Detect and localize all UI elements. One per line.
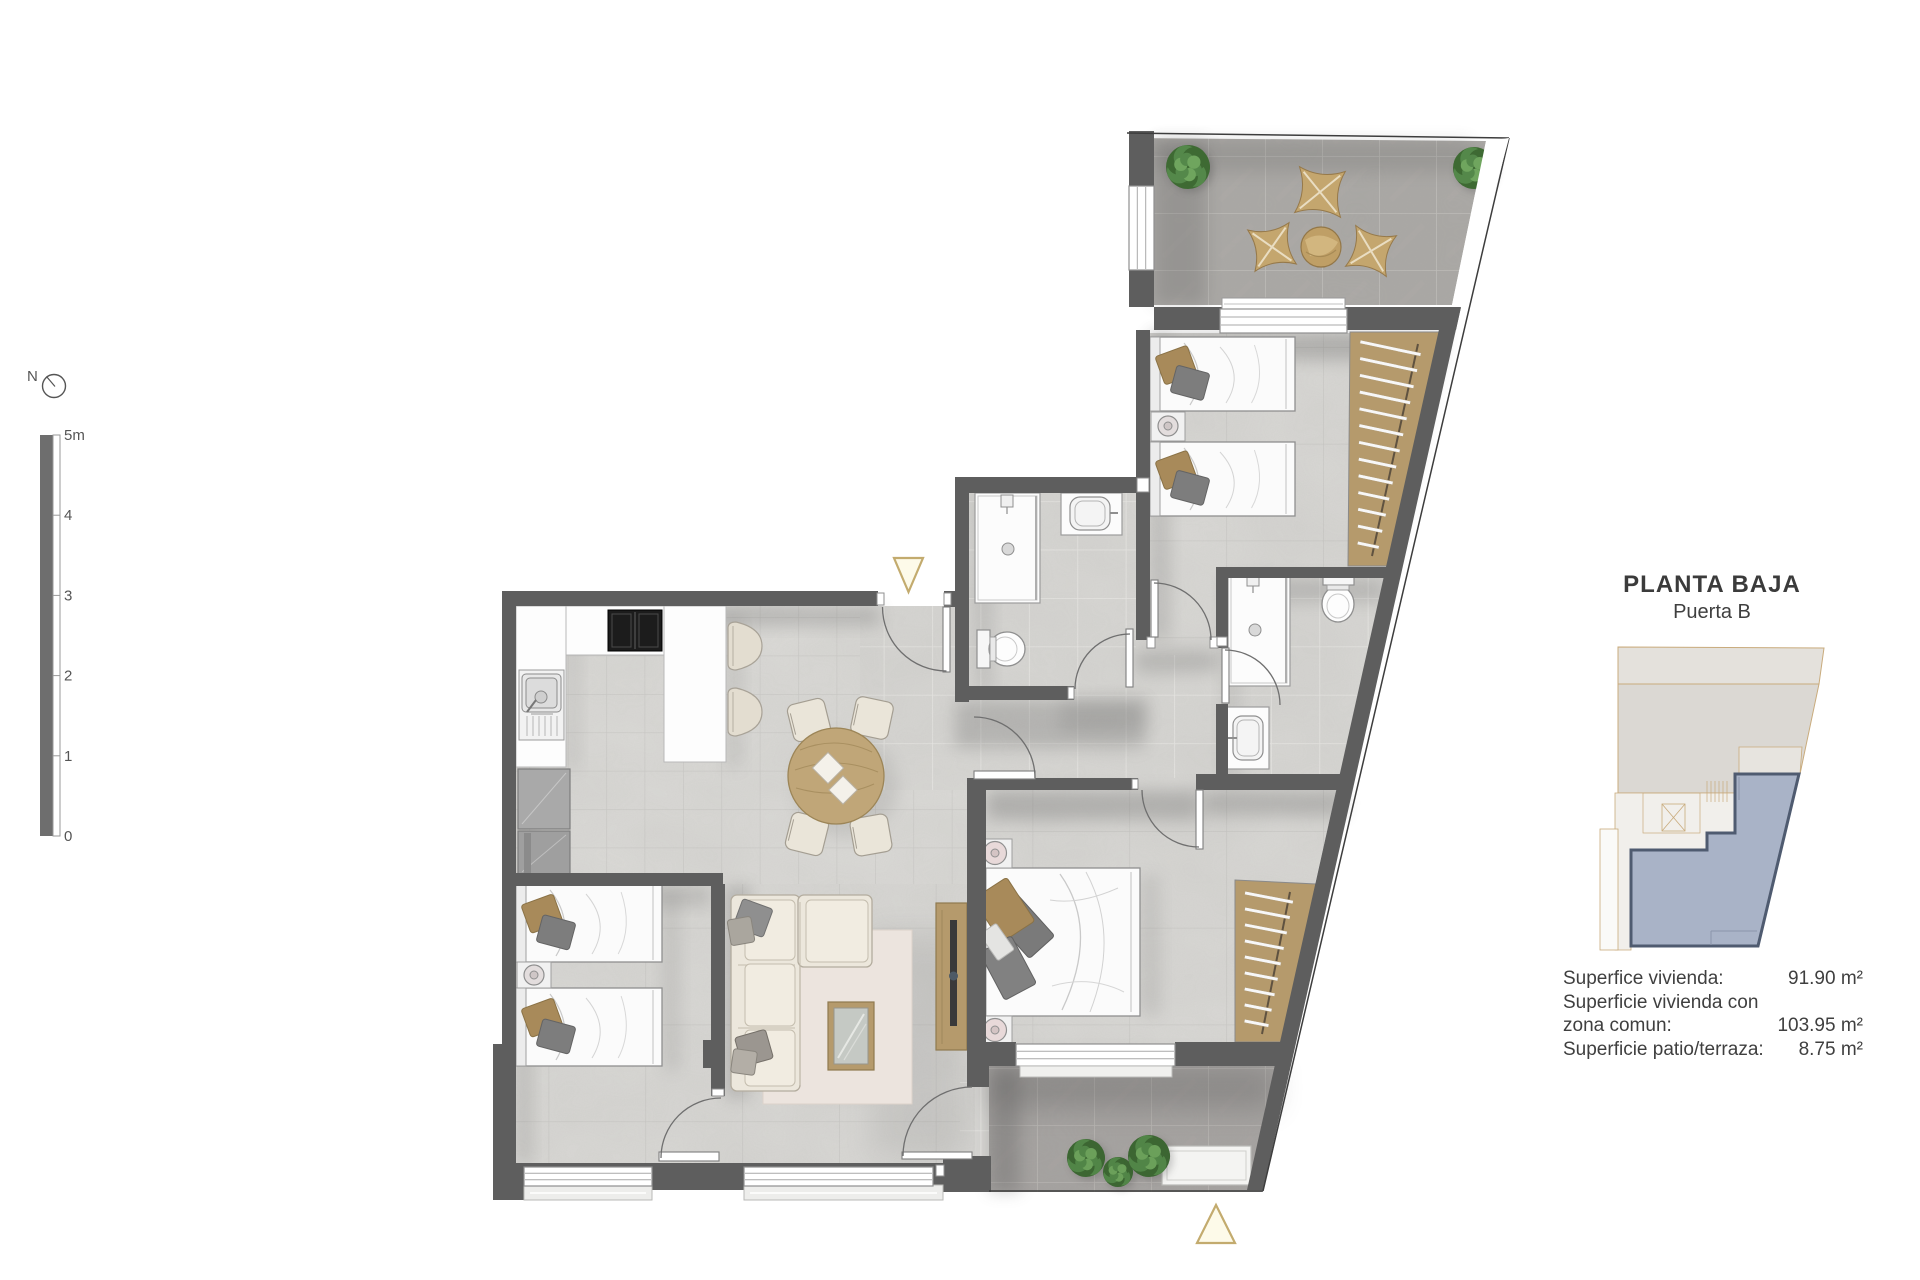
svg-text:Superfice vivienda:: Superfice vivienda: xyxy=(1563,968,1724,989)
svg-text:4: 4 xyxy=(64,507,72,524)
svg-text:103.95 m²: 103.95 m² xyxy=(1777,1015,1863,1036)
svg-text:Superficie patio/terraza:: Superficie patio/terraza: xyxy=(1563,1039,1764,1060)
svg-text:Puerta B: Puerta B xyxy=(1673,601,1751,623)
svg-text:Superficie vivienda con: Superficie vivienda con xyxy=(1563,992,1758,1013)
svg-text:8.75 m²: 8.75 m² xyxy=(1799,1039,1863,1060)
svg-text:91.90 m²: 91.90 m² xyxy=(1788,968,1863,989)
svg-text:1: 1 xyxy=(64,748,72,765)
svg-text:zona comun:: zona comun: xyxy=(1563,1015,1672,1036)
svg-text:N: N xyxy=(27,368,38,385)
svg-text:2: 2 xyxy=(64,668,72,685)
svg-text:PLANTA BAJA: PLANTA BAJA xyxy=(1623,571,1801,598)
svg-text:0: 0 xyxy=(64,828,72,845)
svg-text:5m: 5m xyxy=(64,427,85,444)
svg-text:3: 3 xyxy=(64,587,72,604)
